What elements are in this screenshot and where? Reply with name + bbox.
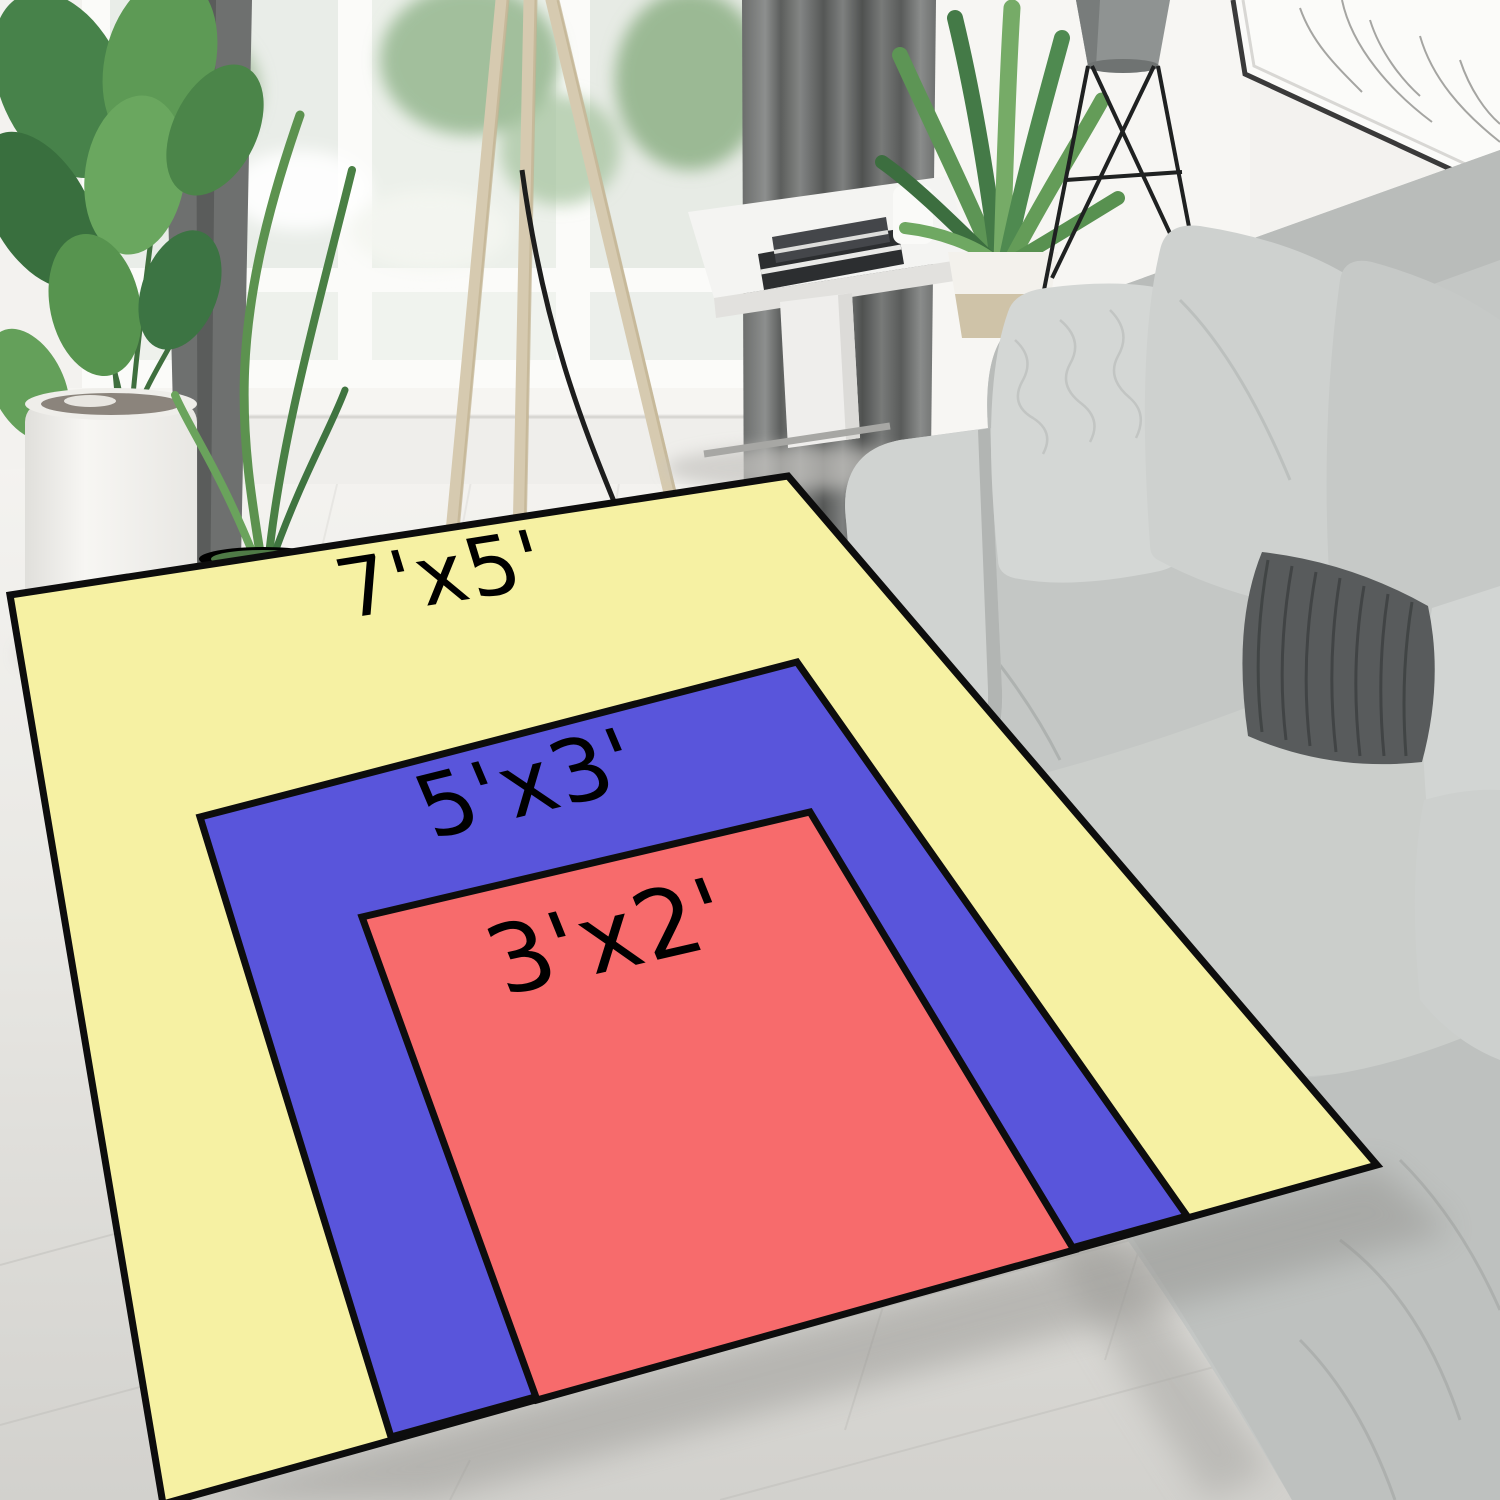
- living-room-product-photo: 7'x5' 5'x3' 3'x2': [0, 0, 1500, 1500]
- scene-canvas: 7'x5' 5'x3' 3'x2': [0, 0, 1500, 1500]
